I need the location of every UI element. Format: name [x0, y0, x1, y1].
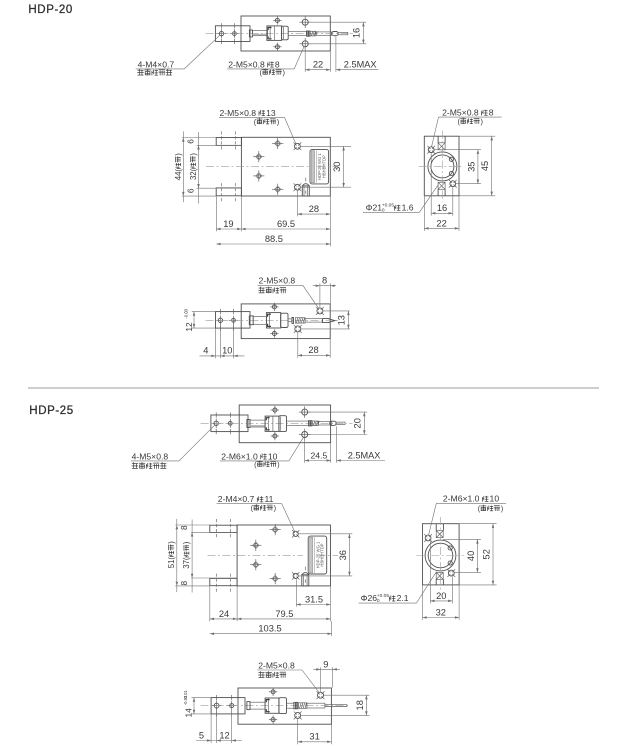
svg-text:51(: 51(: [167, 557, 176, 569]
svg-text:5: 5: [199, 730, 204, 740]
svg-text:16: 16: [352, 28, 362, 38]
svg-text:88.5: 88.5: [265, 234, 283, 244]
svg-text:HBHBHTDP: HBHBHTDP: [320, 543, 325, 566]
svg-text:2-M6×1.0: 2-M6×1.0: [443, 494, 480, 504]
svg-text:): ): [277, 460, 279, 469]
svg-text:36: 36: [338, 550, 348, 560]
svg-text:10: 10: [490, 494, 500, 504]
svg-text:52: 52: [481, 549, 491, 559]
svg-text:45: 45: [480, 161, 490, 171]
svg-text:9: 9: [323, 659, 328, 669]
svg-text:31.5: 31.5: [305, 594, 323, 604]
svg-text:1.6: 1.6: [402, 203, 414, 213]
svg-text:79.5: 79.5: [275, 609, 293, 619]
svg-text:24.5: 24.5: [311, 450, 328, 460]
svg-text:8: 8: [322, 275, 327, 285]
svg-text:HDP-20: HDP-20: [28, 4, 73, 16]
svg-text:HDP-25: HDP-25: [29, 405, 74, 417]
svg-text:-0.03: -0.03: [183, 308, 188, 318]
svg-text:2-M6×1.0: 2-M6×1.0: [221, 451, 258, 461]
svg-text:8: 8: [179, 525, 189, 530]
svg-text:32(: 32(: [189, 168, 198, 180]
svg-text:6: 6: [186, 188, 196, 193]
svg-text:14: 14: [184, 708, 194, 718]
svg-text:11: 11: [264, 494, 273, 504]
svg-text:): ): [501, 504, 503, 513]
svg-text:18: 18: [355, 700, 365, 710]
svg-text:19: 19: [223, 219, 233, 229]
svg-text:20: 20: [436, 591, 446, 601]
svg-text:2-M5×0.8: 2-M5×0.8: [442, 108, 479, 118]
svg-text:2.5MAX: 2.5MAX: [344, 59, 377, 69]
svg-text:13: 13: [337, 315, 347, 325]
svg-text:2-M5×0.8: 2-M5×0.8: [258, 660, 295, 670]
svg-text:6: 6: [186, 139, 196, 144]
svg-text:32: 32: [436, 607, 446, 617]
svg-text:69.5: 69.5: [277, 219, 295, 229]
svg-text:): ): [283, 68, 285, 77]
svg-text:8: 8: [275, 59, 280, 69]
svg-text:4: 4: [203, 346, 208, 356]
svg-text:Φ26: Φ26: [361, 593, 378, 603]
svg-text:): ): [182, 541, 191, 544]
svg-text:22: 22: [436, 218, 446, 228]
svg-text:2-M4×0.7: 2-M4×0.7: [218, 494, 255, 504]
svg-text:4-M5×0.8: 4-M5×0.8: [132, 451, 169, 461]
svg-text:37(: 37(: [182, 557, 191, 569]
svg-text:44(: 44(: [174, 169, 183, 181]
svg-text:12: 12: [219, 730, 229, 740]
svg-text:2-M5×0.8: 2-M5×0.8: [259, 276, 296, 286]
svg-text:): ): [274, 504, 276, 513]
svg-text:2-M5×0.8: 2-M5×0.8: [220, 108, 257, 118]
svg-text:4-M4×0.7: 4-M4×0.7: [138, 59, 175, 69]
svg-text:22: 22: [313, 60, 323, 70]
svg-text:8: 8: [489, 108, 494, 118]
svg-text:40: 40: [466, 551, 476, 561]
svg-text:2.1: 2.1: [397, 593, 409, 603]
svg-text:28: 28: [309, 204, 319, 214]
svg-text:16: 16: [437, 203, 447, 213]
svg-text:20: 20: [353, 418, 363, 428]
svg-text:30: 30: [332, 162, 342, 172]
svg-text:): ): [277, 117, 279, 126]
svg-text:-0.03: -0.03: [183, 695, 188, 705]
svg-text:31: 31: [309, 732, 319, 742]
svg-text:): ): [167, 541, 176, 544]
svg-text:): ): [174, 153, 183, 156]
svg-text:): ): [481, 117, 483, 126]
svg-text:Φ21: Φ21: [366, 203, 383, 213]
svg-text:2.5MAX: 2.5MAX: [348, 450, 381, 460]
svg-text:): ): [189, 153, 198, 156]
svg-text:103.5: 103.5: [258, 624, 281, 634]
svg-text:28: 28: [308, 345, 318, 355]
svg-text:13: 13: [266, 108, 276, 118]
svg-text:12: 12: [184, 322, 194, 332]
svg-text:8: 8: [179, 580, 189, 585]
svg-text:10: 10: [222, 346, 232, 356]
svg-text:35: 35: [466, 162, 476, 172]
svg-text:24: 24: [219, 609, 229, 619]
